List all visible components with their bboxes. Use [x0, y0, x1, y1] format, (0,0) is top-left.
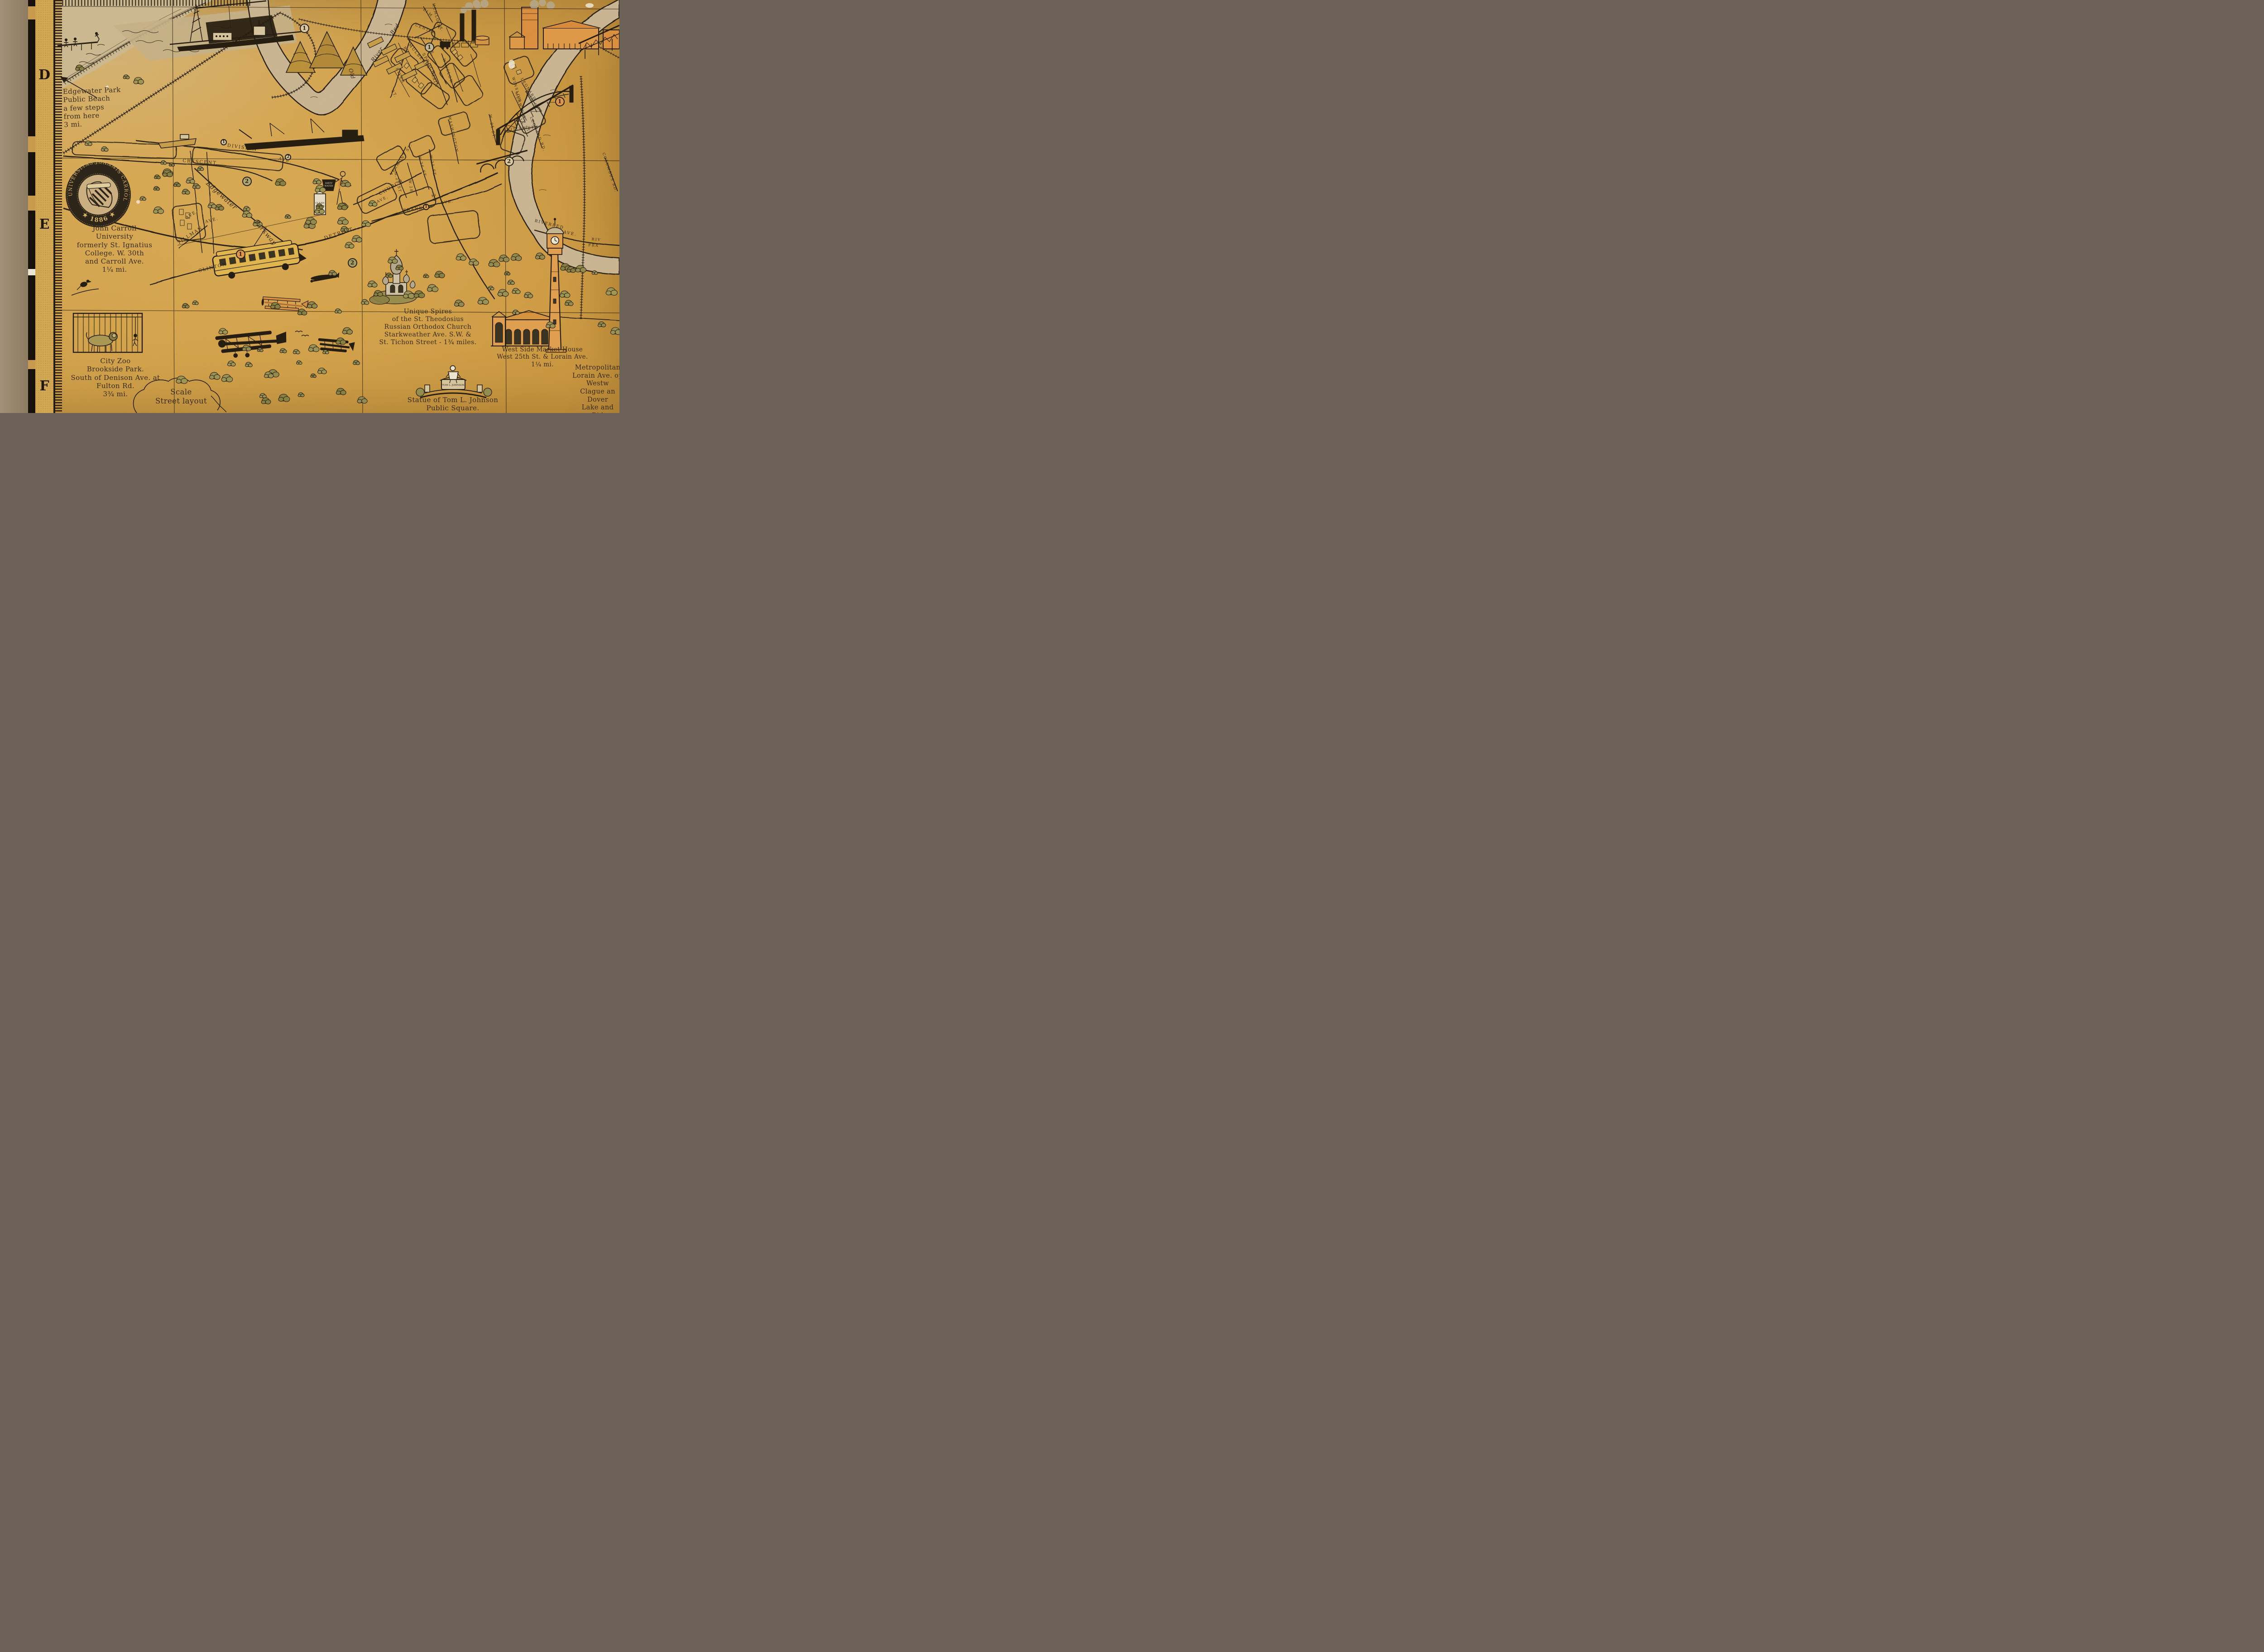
margin-strip	[35, 0, 53, 413]
border-ruler	[28, 0, 35, 413]
annotation-line: Scale	[134, 388, 229, 397]
annotation-line: St. Tichon Street - 1¾ miles.	[360, 339, 496, 346]
street-label: RIV	[591, 237, 601, 242]
annotation-line: Starkweather Ave. S.W. &	[360, 331, 496, 339]
annotation-tom-johnson-statue: Statue of Tom L. JohnsonPublic Square.	[383, 396, 523, 413]
map-marker: 1	[221, 139, 227, 145]
map-marker: 2	[348, 258, 357, 268]
annotation-line: Street layout	[134, 397, 229, 406]
street-label: FRA	[588, 243, 599, 248]
annotation-line: formerly St. Ignatius	[58, 241, 171, 249]
map-edge-fringe-top	[62, 0, 252, 6]
annotation-line: West 25th St. & Lorain Ave.	[481, 353, 604, 360]
annotation-metropolitan: MetropolitanLorain Ave. opWestwClague an…	[546, 364, 619, 413]
map-marker: 2	[504, 157, 514, 166]
annotation-line: Clague an	[546, 388, 619, 396]
annotation-edgewater-park: Edgewater ParkPublic Beacha few stepsfro…	[62, 85, 154, 129]
annotation-line: Rid	[546, 412, 619, 413]
annotation-scale-note: ScaleStreet layout	[134, 388, 229, 406]
map-marker: 1	[236, 250, 245, 259]
annotation-john-carroll: John CarrollUniversityformerly St. Ignat…	[58, 224, 171, 274]
annotation-line: West Side Market House	[481, 346, 604, 353]
annotation-line: Unique Spires	[360, 308, 496, 316]
map-edge-fringe	[53, 0, 62, 413]
pictorial-map-photo: DIRTY WATER CLEAN WATER TOM L. JOHNSON U…	[0, 0, 619, 413]
annotation-line: Lake and	[546, 404, 619, 412]
annotation-line: Brookside Park.	[54, 365, 177, 373]
annotation-line: Westw	[546, 380, 619, 388]
annotation-line: Lorain Ave. op	[546, 372, 619, 380]
grid-row-letter: E	[36, 216, 53, 232]
annotation-line: Metropolitan	[546, 364, 619, 372]
annotation-line: 1¼ mi.	[58, 265, 171, 274]
annotation-line: College. W. 30th	[58, 249, 171, 257]
annotation-line: Statue of Tom L. Johnson	[383, 396, 523, 404]
grid-row-letter: F	[36, 378, 53, 394]
annotation-line: Dover	[546, 396, 619, 404]
annotation-line: South of Denison Ave. at	[54, 374, 177, 382]
annotation-line: John Carroll	[58, 224, 171, 232]
backing-board	[0, 0, 28, 413]
annotation-line: and Carroll Ave.	[58, 257, 171, 265]
annotation-line: Public Square.	[383, 404, 523, 412]
annotation-line: University	[58, 232, 171, 240]
map-marker: 1	[423, 204, 429, 210]
annotation-line: Russian Orthodox Church	[360, 323, 496, 331]
map-marker: 1	[300, 24, 309, 33]
map-marker: 2	[242, 177, 252, 186]
grid-row-letter: D	[36, 67, 53, 83]
annotation-line: City Zoo	[54, 357, 177, 365]
map-marker: 2	[285, 154, 291, 160]
map-marker: 1	[555, 97, 565, 106]
map-marker: 1	[425, 43, 434, 52]
annotation-line: of the St. Theodosius	[360, 316, 496, 323]
annotation-st-theodosius: Unique Spiresof the St. TheodosiusRussia…	[360, 308, 496, 346]
